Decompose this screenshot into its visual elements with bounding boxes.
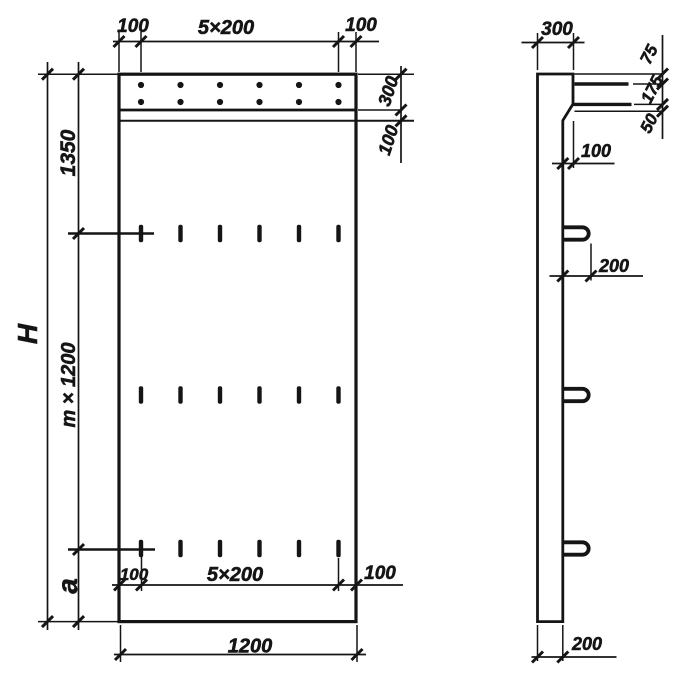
svg-text:a: a xyxy=(52,578,83,594)
svg-text:75: 75 xyxy=(636,41,662,67)
svg-text:200: 200 xyxy=(571,634,602,654)
svg-text:300: 300 xyxy=(374,74,402,109)
svg-text:100: 100 xyxy=(120,565,149,584)
svg-text:300: 300 xyxy=(541,19,573,40)
svg-text:1350: 1350 xyxy=(57,129,80,176)
svg-text:1200: 1200 xyxy=(228,636,273,658)
svg-text:5×200: 5×200 xyxy=(207,564,263,586)
svg-text:100: 100 xyxy=(117,16,149,37)
svg-text:200: 200 xyxy=(598,256,629,276)
svg-text:H: H xyxy=(12,323,43,344)
svg-text:m × 1200: m × 1200 xyxy=(58,342,80,427)
svg-text:100: 100 xyxy=(374,123,402,158)
svg-text:5×200: 5×200 xyxy=(198,17,254,39)
svg-text:100: 100 xyxy=(364,563,396,584)
svg-text:100: 100 xyxy=(581,141,611,161)
svg-text:100: 100 xyxy=(345,15,377,36)
